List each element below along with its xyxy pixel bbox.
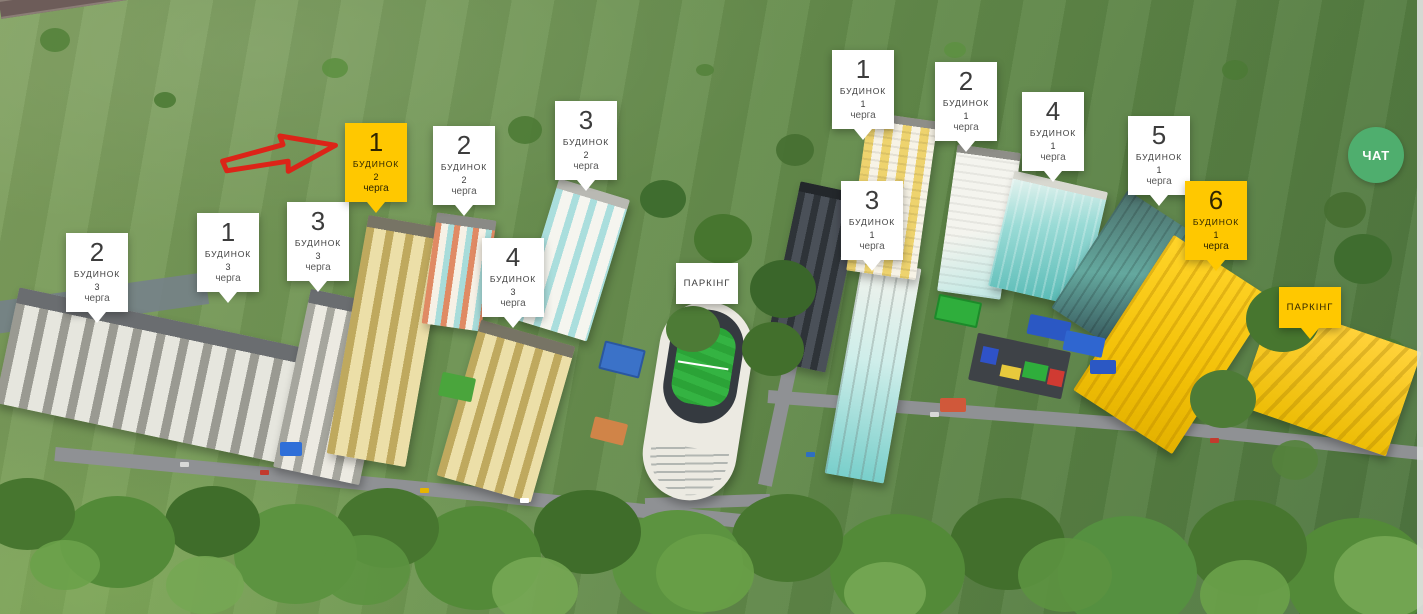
pin-cherga: черга — [289, 262, 347, 273]
pin-parking-white[interactable]: ПАРКІНГ — [676, 263, 738, 304]
red-arrow-annotation — [215, 121, 346, 186]
pin-number: 3 — [843, 186, 901, 214]
pin-phase: 2 — [557, 150, 615, 160]
pin-phase: 3 — [199, 262, 257, 272]
pin-budynok-3-cherga-2[interactable]: 3 БУДИНОК 2 черга — [555, 101, 617, 180]
pin-budynok-3-cherga-1[interactable]: 3 БУДИНОК 1 черга — [841, 181, 903, 260]
pin-phase: 1 — [834, 99, 892, 109]
pin-phase: 1 — [937, 111, 995, 121]
pin-budynok-1-cherga-1[interactable]: 1 БУДИНОК 1 черга — [832, 50, 894, 129]
kindergarten-block-yellow — [999, 364, 1021, 380]
pin-word: БУДИНОК — [68, 269, 126, 279]
pin-word: БУДИНОК — [347, 159, 405, 169]
chat-button[interactable]: ЧАТ — [1348, 127, 1404, 183]
pin-word: БУДИНОК — [937, 98, 995, 108]
pin-word: БУДИНОК — [557, 137, 615, 147]
parking-building-oval[interactable] — [636, 295, 760, 507]
pin-cherga: черга — [834, 110, 892, 121]
pin-number: 4 — [484, 243, 542, 271]
playground-red — [940, 398, 966, 412]
pin-phase: 3 — [289, 251, 347, 261]
pin-number: 1 — [834, 55, 892, 83]
pin-cherga: черга — [1024, 152, 1082, 163]
pin-number: 3 — [289, 207, 347, 235]
pin-parking-yellow-highlighted[interactable]: ПАРКІНГ — [1279, 287, 1341, 328]
pin-budynok-5-cherga-1[interactable]: 5 БУДИНОК 1 черга — [1128, 116, 1190, 195]
pin-cherga: черга — [347, 183, 405, 194]
pin-word: БУДИНОК — [435, 162, 493, 172]
building-budynok-4-cherga-3[interactable] — [437, 320, 576, 503]
pin-budynok-2-cherga-2[interactable]: 2 БУДИНОК 2 черга — [433, 126, 495, 205]
pin-word: БУДИНОК — [834, 86, 892, 96]
kindergarten-block-green — [1022, 361, 1049, 382]
car — [1210, 438, 1219, 443]
pin-budynok-2-cherga-1[interactable]: 2 БУДИНОК 1 черга — [935, 62, 997, 141]
pin-phase: 2 — [435, 175, 493, 185]
page-edge-scrollbar[interactable] — [1417, 0, 1423, 614]
pin-number: 2 — [435, 131, 493, 159]
car — [930, 412, 939, 417]
pin-number: 1 — [347, 128, 405, 156]
pin-number: 6 — [1187, 186, 1245, 214]
pin-number: 3 — [557, 106, 615, 134]
pin-cherga: черга — [68, 293, 126, 304]
pin-parking-label: ПАРКІНГ — [678, 278, 736, 289]
pin-number: 5 — [1130, 121, 1188, 149]
pin-word: БУДИНОК — [843, 217, 901, 227]
pin-cherga: черга — [843, 241, 901, 252]
car — [180, 462, 189, 467]
pin-budynok-2-cherga-3[interactable]: 2 БУДИНОК 3 черга — [66, 233, 128, 312]
pin-cherga: черга — [484, 298, 542, 309]
pin-budynok-1-cherga-3[interactable]: 1 БУДИНОК 3 черга — [197, 213, 259, 292]
car — [806, 452, 815, 457]
pin-phase: 2 — [347, 172, 405, 182]
pin-budynok-4-cherga-1[interactable]: 4 БУДИНОК 1 черга — [1022, 92, 1084, 171]
pin-number: 4 — [1024, 97, 1082, 125]
tennis-court — [598, 340, 646, 378]
trees-between-clusters — [640, 180, 686, 218]
pin-phase: 3 — [484, 287, 542, 297]
playground-orange — [590, 416, 628, 446]
pin-word: БУДИНОК — [1130, 152, 1188, 162]
building-budynok-2-cherga-3[interactable] — [0, 287, 301, 462]
parking-ramp — [645, 441, 730, 501]
pin-cherga: черга — [1130, 176, 1188, 187]
car — [260, 470, 269, 475]
pin-phase: 1 — [1187, 230, 1245, 240]
pin-word: БУДИНОК — [1024, 128, 1082, 138]
kindergarten-building — [968, 333, 1071, 400]
car — [520, 498, 529, 503]
pin-word: БУДИНОК — [484, 274, 542, 284]
pin-phase: 3 — [68, 282, 126, 292]
pin-phase: 1 — [843, 230, 901, 240]
car — [420, 488, 429, 493]
pin-number: 2 — [68, 238, 126, 266]
pin-budynok-4-cherga-3[interactable]: 4 БУДИНОК 3 черга — [482, 238, 544, 317]
pin-parking-label: ПАРКІНГ — [1281, 302, 1339, 313]
chat-button-label: ЧАТ — [1362, 148, 1389, 163]
kindergarten-block-red — [1047, 368, 1065, 387]
pin-budynok-6-cherga-1-highlighted[interactable]: 6 БУДИНОК 1 черга — [1185, 181, 1247, 260]
pin-budynok-1-cherga-2-highlighted[interactable]: 1 БУДИНОК 2 черга — [345, 123, 407, 202]
masterplan-scene: 2 БУДИНОК 3 черга 1 БУДИНОК 3 черга 3 БУ… — [0, 0, 1423, 614]
playground-blue — [1090, 360, 1116, 374]
pin-cherga: черга — [435, 186, 493, 197]
canopy-blue — [280, 442, 302, 456]
pin-budynok-3-cherga-3[interactable]: 3 БУДИНОК 3 черга — [287, 202, 349, 281]
pin-number: 2 — [937, 67, 995, 95]
forest-foreground-highlights — [30, 540, 100, 590]
pin-word: БУДИНОК — [199, 249, 257, 259]
pin-phase: 1 — [1024, 141, 1082, 151]
trees-background — [40, 28, 70, 52]
highway-road — [0, 0, 1423, 19]
pin-cherga: черга — [199, 273, 257, 284]
pin-cherga: черга — [557, 161, 615, 172]
pin-number: 1 — [199, 218, 257, 246]
pin-word: БУДИНОК — [1187, 217, 1245, 227]
pin-cherga: черга — [1187, 241, 1245, 252]
sports-court-green — [934, 294, 982, 329]
kindergarten-block-blue — [980, 346, 999, 365]
pin-cherga: черга — [937, 122, 995, 133]
pin-phase: 1 — [1130, 165, 1188, 175]
pin-word: БУДИНОК — [289, 238, 347, 248]
